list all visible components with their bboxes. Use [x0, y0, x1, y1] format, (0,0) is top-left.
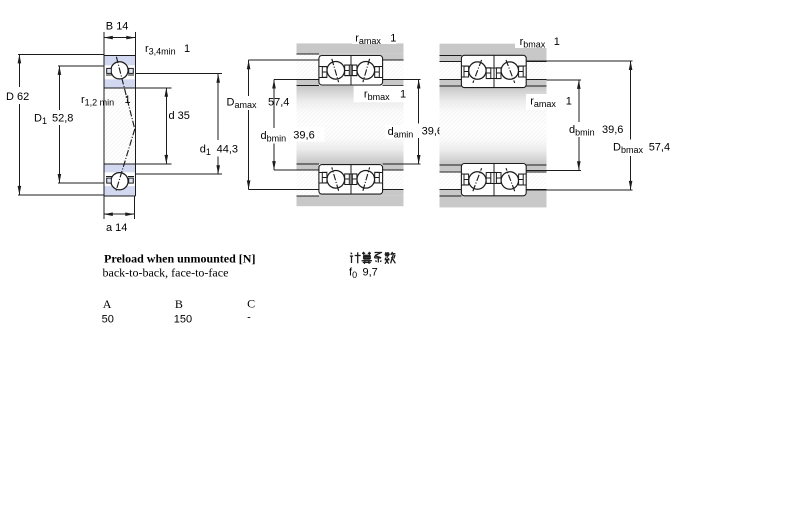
svg-text:Preload when unmounted [N]: Preload when unmounted [N]	[104, 252, 255, 266]
svg-text:d 35: d 35	[169, 110, 190, 122]
svg-text:1: 1	[566, 96, 572, 108]
svg-text:D 62: D 62	[6, 91, 29, 103]
svg-text:1: 1	[554, 36, 560, 48]
svg-text:150: 150	[174, 314, 192, 326]
svg-text:1: 1	[125, 94, 131, 106]
svg-text:39,6: 39,6	[602, 124, 623, 136]
svg-text:C: C	[247, 297, 255, 311]
svg-text:1: 1	[184, 43, 190, 55]
svg-text:a 14: a 14	[106, 222, 127, 234]
svg-text:1: 1	[400, 89, 406, 101]
svg-text:52,8: 52,8	[52, 112, 73, 124]
svg-text:-: -	[247, 312, 251, 324]
svg-text:50: 50	[102, 314, 114, 326]
svg-text:back-to-back, face-to-face: back-to-back, face-to-face	[103, 266, 229, 280]
svg-text:57,4: 57,4	[268, 97, 289, 109]
svg-text:B 14: B 14	[106, 20, 129, 32]
svg-text:1: 1	[390, 32, 396, 44]
svg-text:9,7: 9,7	[363, 267, 378, 279]
svg-text:44,3: 44,3	[217, 144, 238, 156]
svg-text:B: B	[175, 297, 183, 311]
svg-text:A: A	[103, 297, 112, 311]
svg-text:57,4: 57,4	[649, 141, 670, 153]
svg-text:39,6: 39,6	[293, 130, 314, 142]
